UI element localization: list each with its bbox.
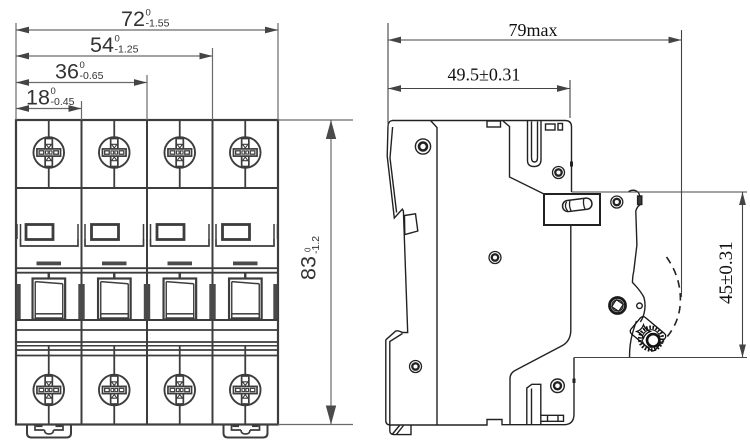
svg-text:-1.25: -1.25 [115,44,139,56]
svg-text:79max: 79max [509,20,558,40]
svg-text:-0.65: -0.65 [80,70,104,82]
svg-text:-1.2: -1.2 [310,236,322,254]
svg-text:49.5±0.31: 49.5±0.31 [448,65,521,85]
svg-text:18: 18 [26,86,50,110]
svg-text:36: 36 [55,60,79,84]
svg-text:72: 72 [121,7,145,31]
svg-text:83: 83 [297,256,321,280]
svg-text:45±0.31: 45±0.31 [716,241,737,304]
svg-text:-0.45: -0.45 [51,96,75,108]
svg-text:-1.55: -1.55 [146,18,170,30]
svg-text:54: 54 [90,33,114,57]
